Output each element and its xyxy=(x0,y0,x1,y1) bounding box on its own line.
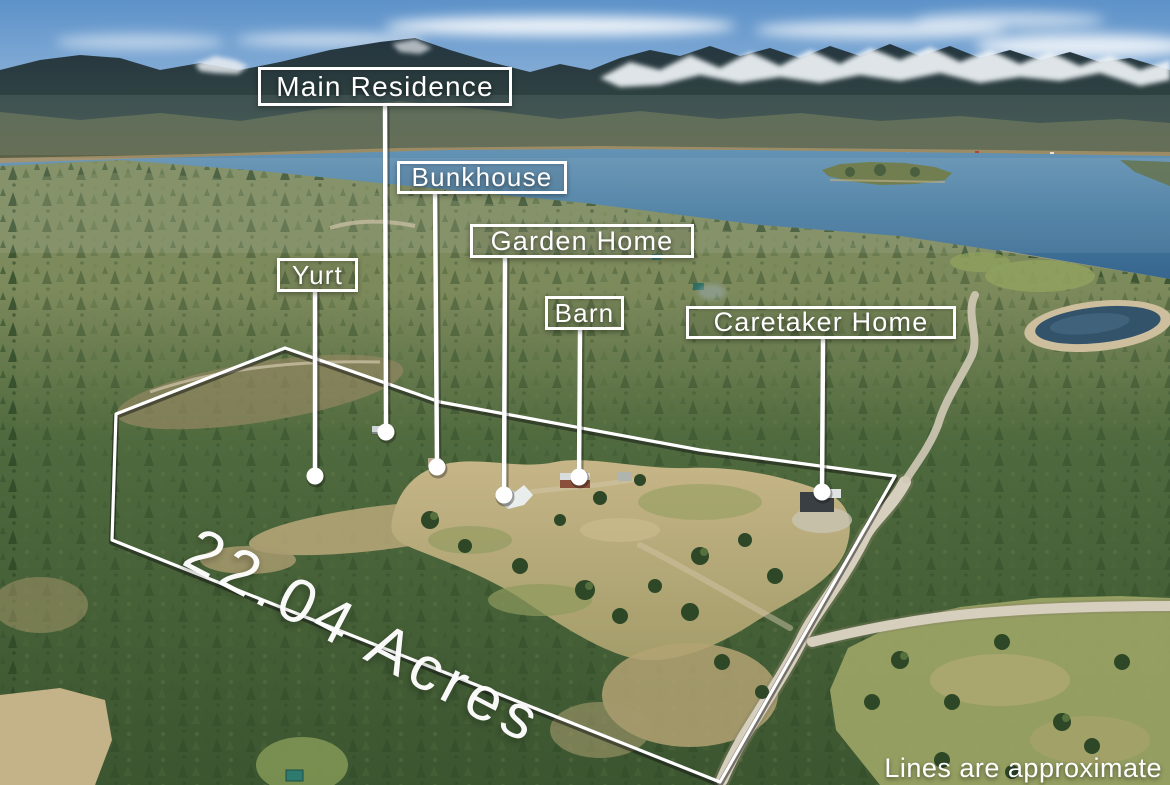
callout-label-yurt: Yurt xyxy=(277,258,358,292)
callout-label-barn: Barn xyxy=(545,296,624,330)
callout-label-main-residence: Main Residence xyxy=(258,67,512,106)
callout-label-caretaker-home: Caretaker Home xyxy=(686,306,956,339)
teal-roof-hut xyxy=(286,770,303,781)
disclaimer-text: Lines are approximate xyxy=(884,753,1162,784)
callout-label-bunkhouse: Bunkhouse xyxy=(397,161,567,194)
aerial-property-photo: Main Residence Bunkhouse Garden Home Yur… xyxy=(0,0,1170,785)
haze xyxy=(0,95,1170,155)
bunkhouse-building xyxy=(428,458,441,467)
callout-label-garden-home: Garden Home xyxy=(470,224,694,258)
aerial-photo-scene xyxy=(0,0,1170,785)
